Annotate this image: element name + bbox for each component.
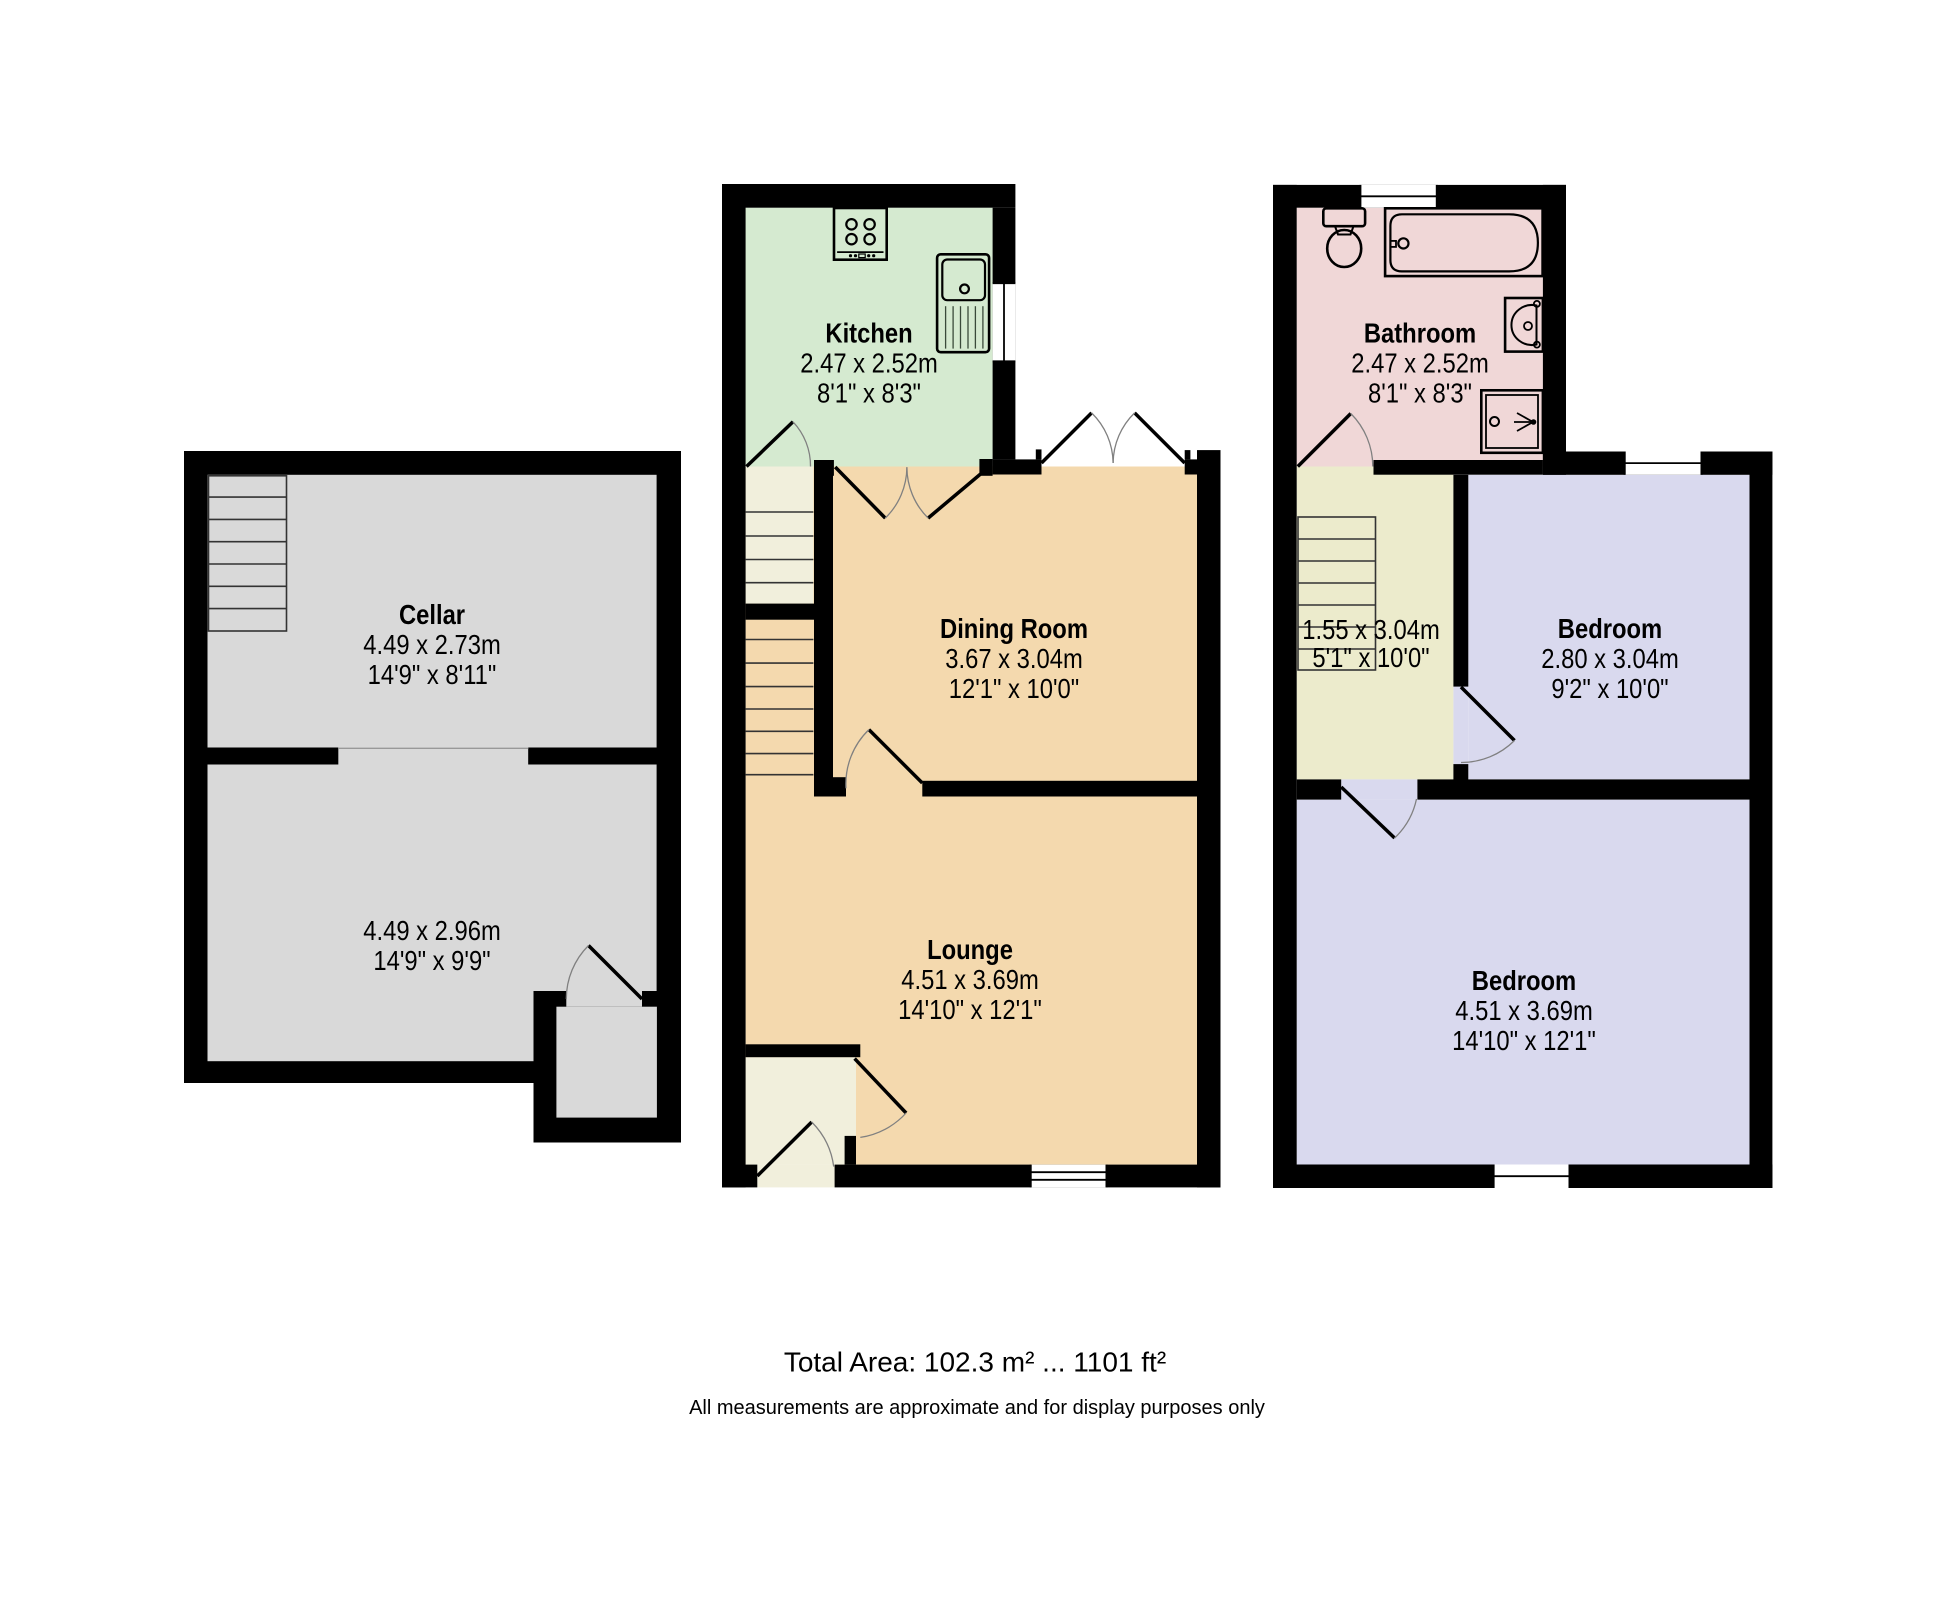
- svg-text:Cellar: Cellar: [399, 598, 465, 630]
- svg-text:5'1" x 10'0": 5'1" x 10'0": [1312, 641, 1429, 673]
- svg-text:12'1" x 10'0": 12'1" x 10'0": [949, 672, 1079, 704]
- svg-text:4.49 x 2.73m: 4.49 x 2.73m: [363, 628, 501, 660]
- svg-text:14'10" x 12'1": 14'10" x 12'1": [898, 993, 1042, 1025]
- svg-text:2.80 x 3.04m: 2.80 x 3.04m: [1541, 642, 1679, 674]
- svg-text:4.49 x 2.96m: 4.49 x 2.96m: [363, 914, 501, 946]
- svg-text:Kitchen: Kitchen: [825, 317, 912, 349]
- svg-text:3.67 x 3.04m: 3.67 x 3.04m: [945, 642, 1083, 674]
- svg-text:Total Area: 102.3 m² ... 1101: Total Area: 102.3 m² ... 1101 ft²: [784, 1347, 1166, 1378]
- svg-text:2.47 x 2.52m: 2.47 x 2.52m: [800, 347, 938, 379]
- svg-text:All measurements are approxima: All measurements are approximate and for…: [689, 1397, 1265, 1419]
- svg-text:8'1" x 8'3": 8'1" x 8'3": [817, 377, 921, 409]
- svg-text:Dining Room: Dining Room: [940, 612, 1088, 644]
- svg-text:4.51 x 3.69m: 4.51 x 3.69m: [901, 963, 1039, 995]
- svg-text:Bathroom: Bathroom: [1364, 317, 1476, 349]
- svg-text:9'2" x 10'0": 9'2" x 10'0": [1551, 672, 1668, 704]
- svg-text:8'1" x 8'3": 8'1" x 8'3": [1368, 377, 1472, 409]
- svg-text:Bedroom: Bedroom: [1472, 964, 1576, 996]
- svg-text:4.51 x 3.69m: 4.51 x 3.69m: [1455, 994, 1593, 1026]
- svg-text:Lounge: Lounge: [927, 933, 1013, 965]
- svg-text:14'9" x 9'9": 14'9" x 9'9": [373, 944, 490, 976]
- svg-text:2.47 x 2.52m: 2.47 x 2.52m: [1351, 347, 1489, 379]
- svg-text:14'10" x 12'1": 14'10" x 12'1": [1452, 1024, 1596, 1056]
- svg-text:Bedroom: Bedroom: [1558, 612, 1662, 644]
- svg-text:14'9" x 8'11": 14'9" x 8'11": [368, 658, 497, 690]
